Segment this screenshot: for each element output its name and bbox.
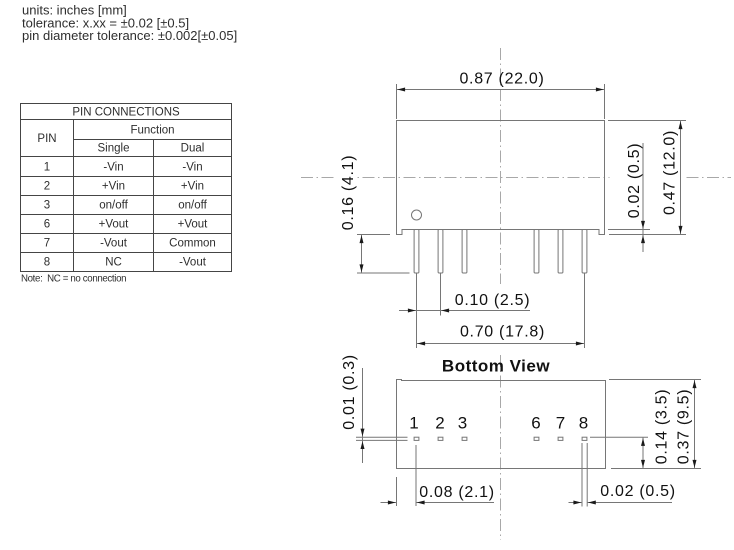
svg-text:1: 1 xyxy=(44,162,50,174)
svg-text:7: 7 xyxy=(44,238,50,250)
svg-text:3: 3 xyxy=(44,200,50,212)
svg-text:-Vout: -Vout xyxy=(100,238,128,250)
svg-text:on/off: on/off xyxy=(99,200,128,212)
svg-text:on/off: on/off xyxy=(178,200,207,212)
svg-text:-Vin: -Vin xyxy=(103,162,123,174)
svg-text:NC: NC xyxy=(105,257,122,269)
svg-text:0.02 (0.5): 0.02 (0.5) xyxy=(626,143,643,218)
svg-text:0.47 (12.0): 0.47 (12.0) xyxy=(662,130,679,215)
svg-text:0.08 (2.1): 0.08 (2.1) xyxy=(419,484,494,501)
svg-text:Note: NC = no connection: Note: NC = no connection xyxy=(21,274,126,285)
svg-text:0.70 (17.8): 0.70 (17.8) xyxy=(460,324,545,341)
svg-text:-Vout: -Vout xyxy=(179,257,207,269)
svg-text:-Vin: -Vin xyxy=(182,162,202,174)
svg-text:Dual: Dual xyxy=(181,143,205,155)
svg-text:6: 6 xyxy=(531,414,540,433)
svg-text:PIN CONNECTIONS: PIN CONNECTIONS xyxy=(72,107,180,119)
svg-text:0.16 (4.1): 0.16 (4.1) xyxy=(340,155,357,230)
svg-text:8: 8 xyxy=(579,414,588,433)
svg-text:0.37 (9.5): 0.37 (9.5) xyxy=(676,389,693,464)
svg-text:Single: Single xyxy=(98,143,130,155)
svg-text:Common: Common xyxy=(169,238,216,250)
svg-text:Function: Function xyxy=(130,125,174,137)
svg-text:2: 2 xyxy=(435,414,444,433)
svg-text:7: 7 xyxy=(556,414,565,433)
svg-text:pin diameter tolerance: ±0.002: pin diameter tolerance: ±0.002[±0.05] xyxy=(22,28,237,43)
svg-text:6: 6 xyxy=(44,219,50,231)
svg-text:0.02 (0.5): 0.02 (0.5) xyxy=(600,483,675,500)
svg-text:0.10 (2.5): 0.10 (2.5) xyxy=(455,292,530,309)
svg-text:+Vout: +Vout xyxy=(99,219,130,231)
svg-text:0.87 (22.0): 0.87 (22.0) xyxy=(459,71,544,88)
svg-text:1: 1 xyxy=(409,414,418,433)
svg-text:+Vin: +Vin xyxy=(181,181,204,193)
svg-text:0.01 (0.3): 0.01 (0.3) xyxy=(341,354,358,429)
svg-text:0.14 (3.5): 0.14 (3.5) xyxy=(654,389,671,464)
svg-text:+Vout: +Vout xyxy=(178,219,209,231)
svg-text:3: 3 xyxy=(458,414,467,433)
svg-text:PIN: PIN xyxy=(37,133,56,145)
svg-text:Bottom View: Bottom View xyxy=(442,357,550,376)
svg-text:2: 2 xyxy=(44,181,50,193)
svg-text:+Vin: +Vin xyxy=(102,181,125,193)
svg-text:8: 8 xyxy=(44,257,50,269)
